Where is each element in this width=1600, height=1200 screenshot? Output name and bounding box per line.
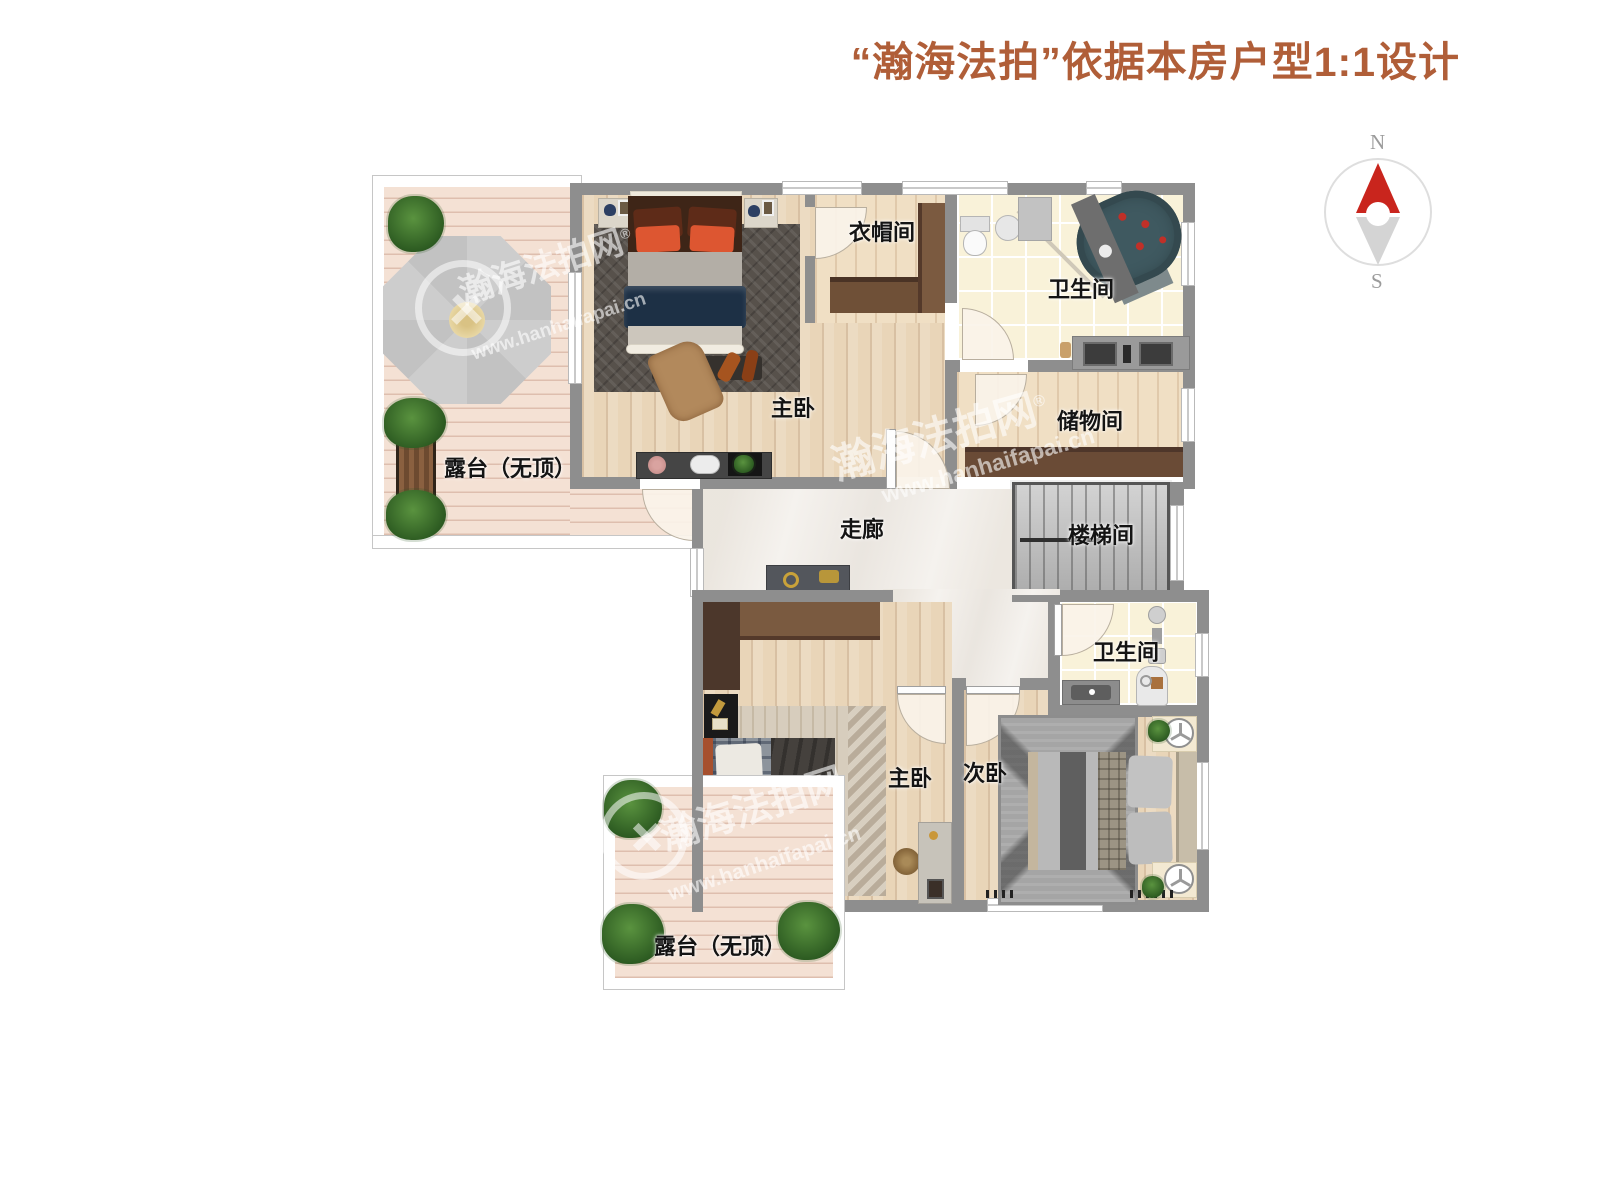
- wardrobe: [918, 203, 945, 313]
- wall: [1020, 678, 1050, 690]
- toilet-tray: [1151, 677, 1163, 689]
- picture-frame: [762, 200, 774, 216]
- flower-petal: [1117, 211, 1128, 222]
- pillow: [689, 225, 734, 253]
- room-label-corridor: 走廊: [840, 512, 884, 544]
- compass: N S: [1310, 125, 1450, 295]
- compass-hub: [1366, 202, 1390, 226]
- decor-gold-tray: [819, 570, 839, 583]
- room-label-master-bottom: 主卧: [888, 761, 932, 793]
- window: [568, 272, 582, 384]
- flower-petal: [1135, 241, 1146, 252]
- desk: [918, 822, 952, 904]
- window: [1195, 633, 1209, 677]
- door-leaf: [1054, 604, 1062, 656]
- room-label-terrace-bottom: 露台（无顶）: [654, 929, 786, 961]
- nightstand: [704, 694, 738, 738]
- vanity-counter: [1062, 680, 1120, 705]
- towel: [1060, 342, 1071, 358]
- nightstand-decor: [748, 205, 760, 217]
- fan-spoke: [1170, 879, 1181, 887]
- toilet-ring: [1140, 675, 1152, 687]
- compass-south-label: S: [1371, 269, 1383, 294]
- decor-bottle: [711, 699, 726, 717]
- window: [1181, 388, 1195, 442]
- wall: [805, 256, 815, 323]
- wall: [952, 678, 964, 912]
- bed: [1028, 752, 1197, 870]
- vanity-counter: [1072, 336, 1190, 370]
- room-label-cloakroom: 衣帽间: [849, 215, 915, 247]
- room-label-bath-top: 卫生间: [1048, 272, 1114, 304]
- room-label-stairwell: 楼梯间: [1068, 518, 1134, 550]
- wardrobe: [703, 602, 740, 690]
- faucet: [1089, 689, 1095, 695]
- door-leaf: [966, 686, 1020, 694]
- bed: [628, 196, 742, 352]
- page-title: “瀚海法拍”依据本房户型1:1设计: [851, 28, 1460, 88]
- window: [782, 181, 862, 195]
- pillow: [635, 225, 680, 253]
- faucet: [1123, 345, 1131, 363]
- window: [1086, 181, 1122, 195]
- wall: [805, 195, 815, 207]
- floor-decor: [986, 890, 1016, 898]
- bed-runner: [1060, 752, 1086, 870]
- bed-footband: [1028, 752, 1038, 870]
- desk-decor: [929, 831, 938, 840]
- fan-spoke: [1170, 733, 1181, 741]
- window: [1195, 762, 1209, 850]
- toilet-bowl: [963, 230, 987, 256]
- decor-gold-ring: [783, 572, 799, 588]
- fan-spoke: [1180, 879, 1191, 887]
- decor-plate: [648, 456, 666, 474]
- wall: [692, 590, 893, 602]
- headboard: [1176, 752, 1197, 870]
- plant: [1148, 720, 1170, 742]
- wall: [945, 360, 960, 372]
- wall: [1060, 590, 1209, 602]
- window: [902, 181, 1008, 195]
- compass-north-label: N: [1370, 130, 1385, 155]
- pillow: [1127, 755, 1173, 809]
- sink: [1083, 342, 1117, 366]
- floorplan-canvas: “瀚海法拍”依据本房户型1:1设计 N S: [0, 0, 1600, 1200]
- flower-petal: [1158, 235, 1167, 244]
- watermark-logo-icon: [600, 792, 688, 880]
- decor-card: [712, 718, 728, 730]
- bed-sheet: [628, 252, 742, 288]
- door-leaf: [897, 686, 946, 694]
- shower-head: [1148, 606, 1166, 624]
- nightstand-decor: [604, 204, 616, 216]
- storage-cabinet: [965, 447, 1183, 477]
- towel-shelf: [1018, 197, 1052, 241]
- bed-duvet: [624, 286, 746, 328]
- wall: [945, 183, 957, 303]
- bed-plaid-blanket: [1098, 752, 1126, 870]
- window: [1170, 505, 1184, 581]
- fan-spoke: [1180, 733, 1191, 741]
- desk-photo: [927, 879, 944, 899]
- wall: [692, 775, 703, 912]
- flower-petal: [1140, 219, 1151, 230]
- rug-chevron-band: [848, 706, 886, 896]
- room-label-storage: 储物间: [1057, 404, 1123, 436]
- window: [1181, 222, 1195, 286]
- corridor-floor: [703, 489, 1012, 601]
- door-leaf: [886, 429, 896, 489]
- wardrobe: [830, 277, 930, 313]
- decor-tray: [690, 455, 720, 474]
- room-label-master-top: 主卧: [771, 391, 815, 423]
- room-label-bath-bottom: 卫生间: [1093, 635, 1159, 667]
- room-label-second-bedroom: 次卧: [963, 756, 1007, 788]
- stool: [893, 848, 920, 875]
- watermark-logo-icon: [415, 260, 511, 356]
- plant: [1142, 876, 1164, 898]
- pillow: [1127, 811, 1173, 865]
- wall: [570, 477, 640, 489]
- sink: [1139, 342, 1173, 366]
- room-label-terrace-top: 露台（无顶）: [444, 451, 576, 483]
- toilet: [1136, 666, 1168, 706]
